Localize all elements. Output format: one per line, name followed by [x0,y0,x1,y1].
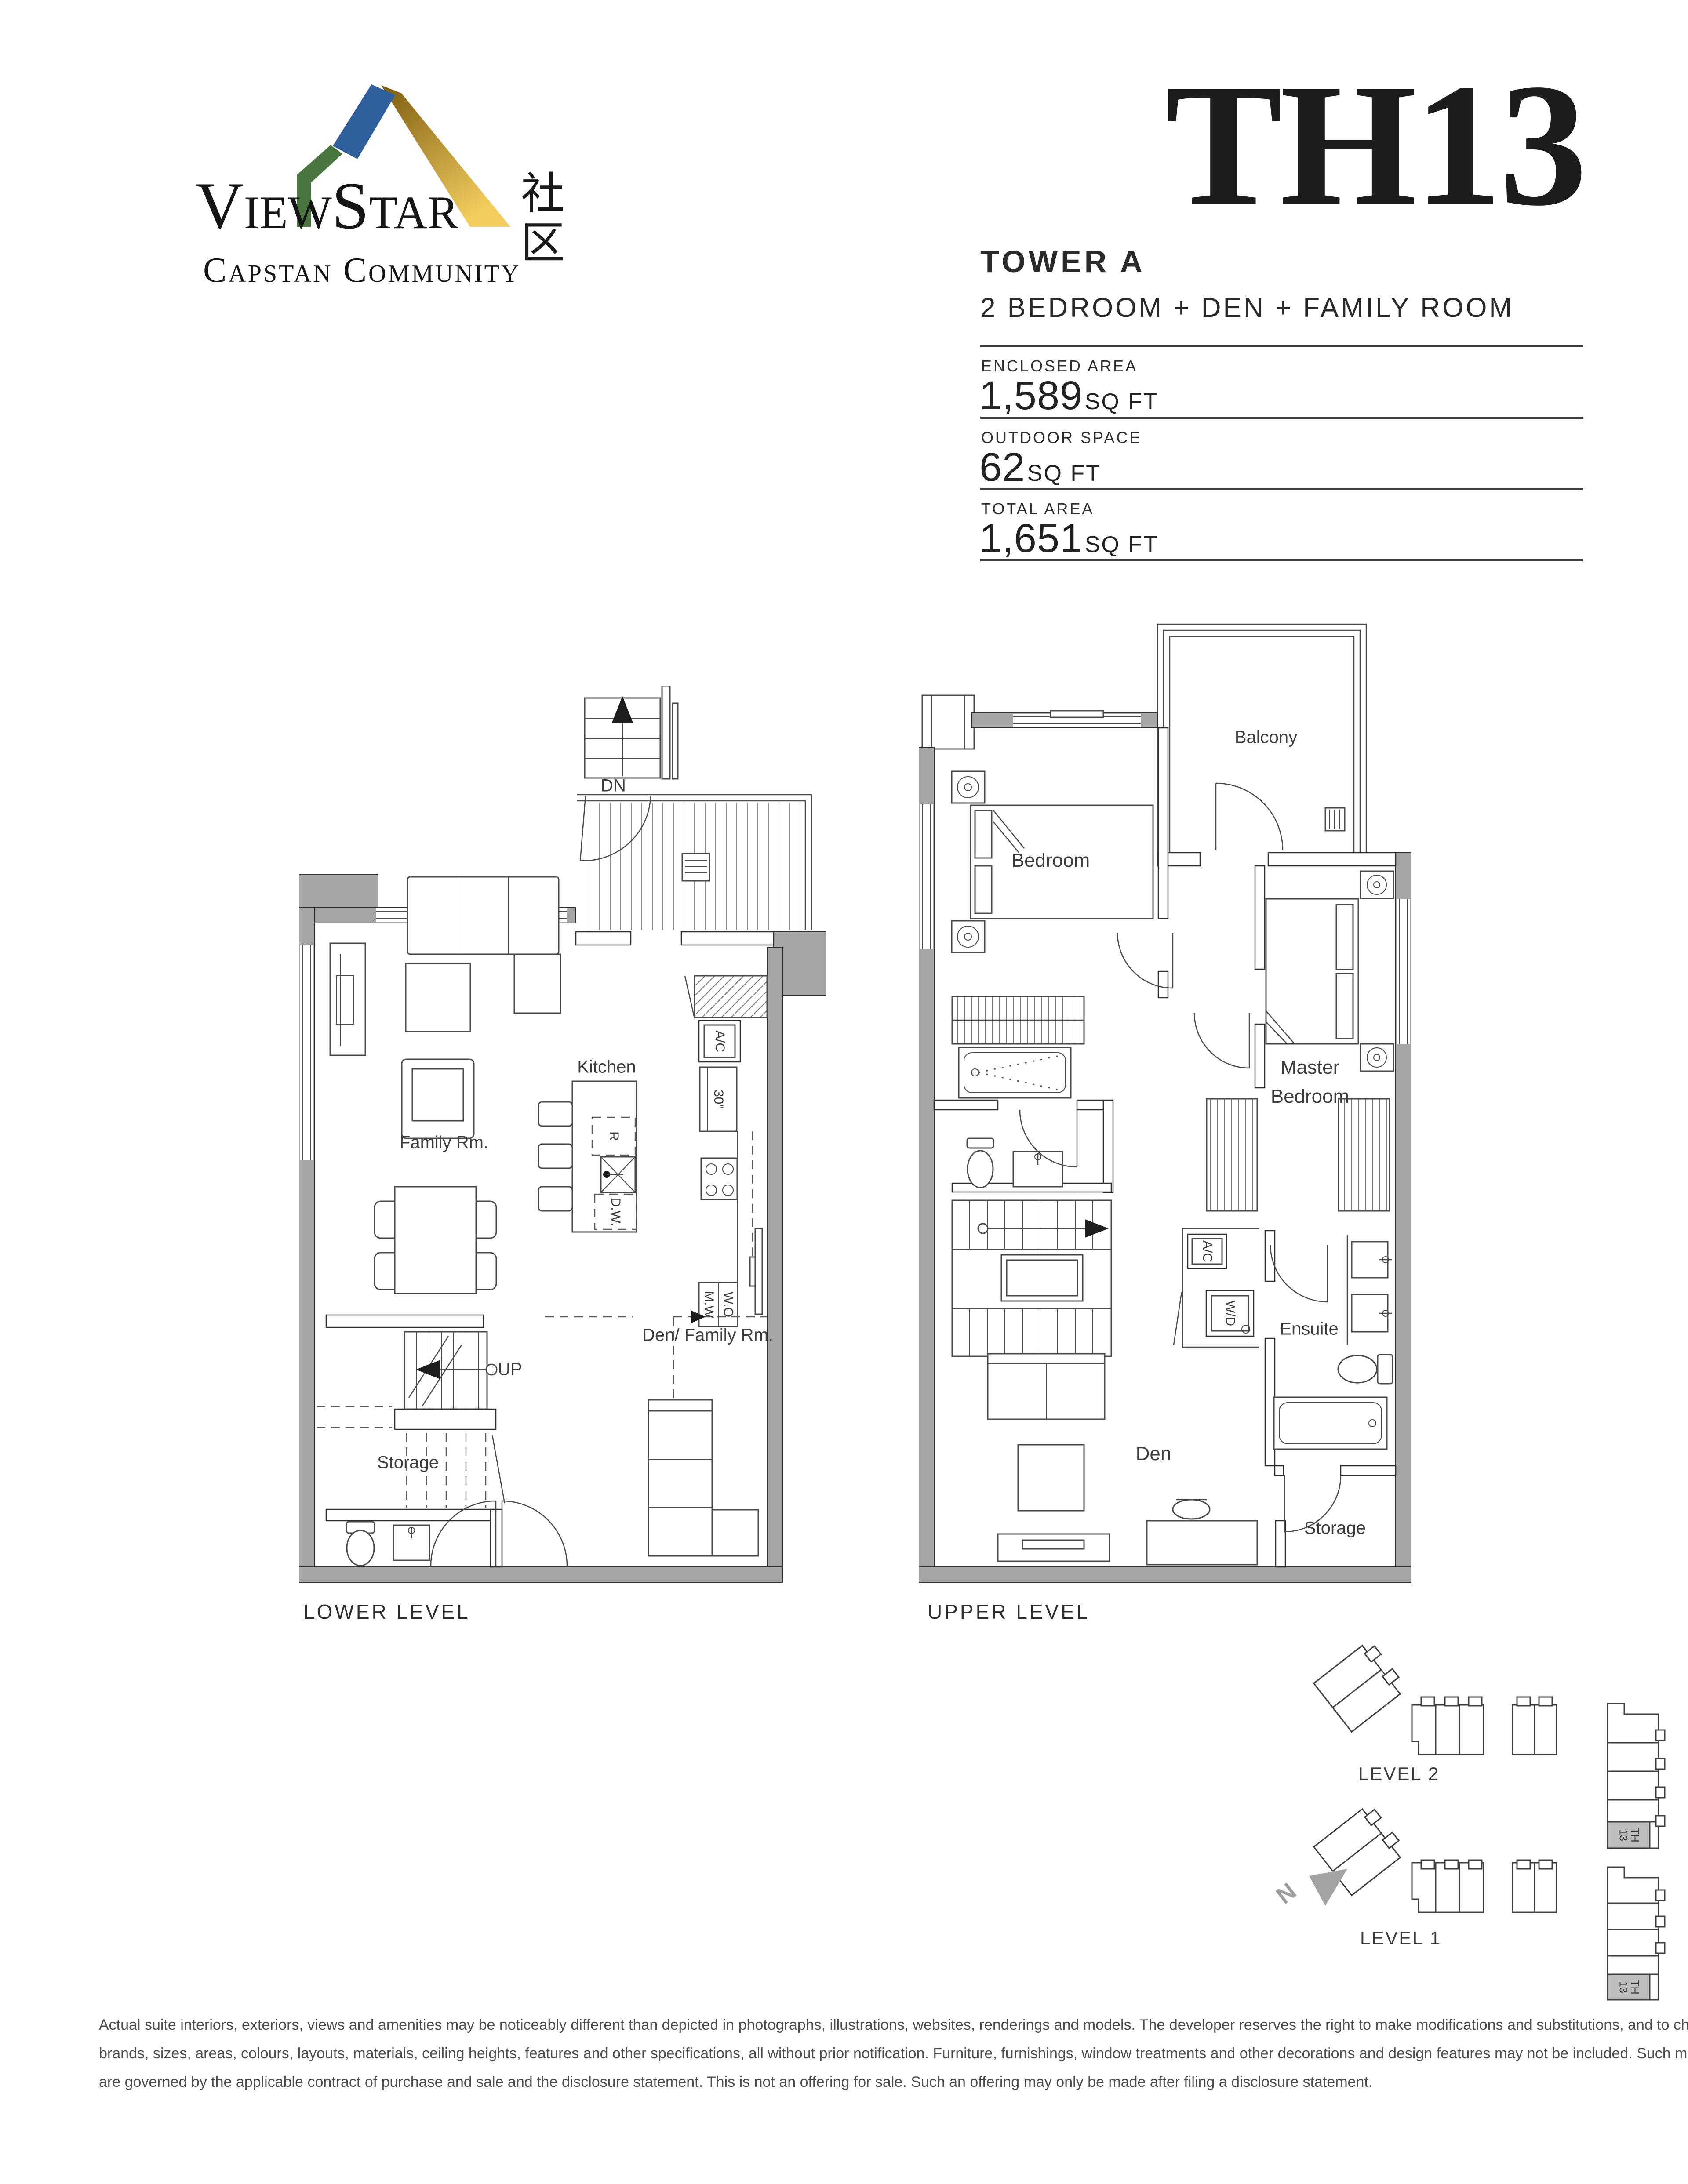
key-plan-drawing [1253,1644,1670,2022]
powder-toilet [346,1522,375,1566]
divider [980,345,1583,347]
level1-label: LEVEL 1 [1360,1928,1441,1949]
label-wall-oven: W.O [720,1292,735,1317]
den-media-console [750,1228,762,1314]
brand-cjk: 社区 [521,169,569,268]
disclaimer: Actual suite interiors, exteriors, views… [99,2011,1688,2097]
den-furniture [988,1354,1257,1565]
divider [980,559,1583,561]
unit-tag-level1: TH 13 [1617,1973,1641,2001]
tower-name: TOWER A [980,244,1146,279]
area-value-enclosed: 1,589 SQ FT [979,373,1159,419]
label-ensuite: Ensuite [1280,1319,1338,1339]
brand-name: ViewStar [196,172,458,239]
label-dishwasher: D.W. [608,1198,623,1226]
lower-level-title: LOWER LEVEL [303,1600,470,1624]
label-bedroom: Bedroom [1011,850,1090,872]
stairs-up [404,1332,497,1409]
label-range: R [606,1131,621,1141]
label-den: Den [1136,1443,1171,1465]
label-fridge: 30" [711,1090,726,1109]
powder-sink [393,1525,429,1560]
label-master-bedroom: Master Bedroom [1244,1053,1376,1111]
label-den-family: Den/ Family Rm. [642,1326,773,1345]
label-ac: A/C [712,1030,727,1052]
divider [980,417,1583,419]
console-table [330,943,365,1055]
unit-type: 2 BEDROOM + DEN + FAMILY ROOM [980,292,1514,323]
key-plans: LEVEL 2 LEVEL 1 TH 13 TH 13 N [1253,1644,1670,2022]
unit-tag-level2: TH 13 [1617,1821,1641,1849]
den-sofa [648,1400,758,1556]
upper-level-plan: Balcony Bedroom Master Bedroom A/C W/D E… [919,615,1411,1604]
disclaimer-line2: brands, sizes, areas, colours, layouts, … [99,2039,1688,2068]
disclaimer-line1: Actual suite interiors, exteriors, views… [99,2011,1688,2039]
disclaimer-line3: are governed by the applicable contract … [99,2068,1688,2097]
label-dn: DN [600,776,626,796]
main-bath [959,1047,1077,1188]
community-name: Capstan Community [203,251,520,291]
cooktop [701,1158,737,1199]
stair-landing [395,1409,496,1429]
area-value-outdoor: 62 SQ FT [979,444,1101,491]
area-value-total: 1,651 SQ FT [979,516,1159,562]
entry-deck [577,795,811,930]
label-balcony: Balcony [1235,728,1297,748]
interior-wall [326,1509,491,1521]
label-family-room: Family Rm. [400,1133,488,1153]
level2-label: LEVEL 2 [1358,1763,1440,1784]
label-up: UP [498,1360,522,1380]
stairs [952,1200,1111,1356]
dining-set [375,1187,496,1294]
lower-level-plan: DN Kitchen Family Rm. A/C 30" R D.W. M.W… [299,686,826,1626]
divider [980,488,1583,490]
coffee-table [406,963,470,1032]
lower-level-drawing [299,686,826,1626]
unit-code: TH13 [1165,57,1585,233]
label-washer-dryer: W/D [1222,1301,1237,1326]
label-ac: A/C [1200,1240,1215,1262]
interior-wall [326,1315,484,1327]
island-sink [601,1157,635,1192]
label-storage: Storage [1304,1519,1366,1538]
label-storage: Storage [377,1453,439,1473]
room-doors [1117,933,1249,1068]
upper-level-title: UPPER LEVEL [928,1600,1090,1624]
label-kitchen: Kitchen [577,1057,636,1077]
armchair [402,1059,474,1138]
ensuite-fixtures [1270,1235,1393,1449]
master-bedroom-furniture [1266,871,1393,1071]
label-microwave: M.W [701,1291,716,1318]
north-arrow-icon [1309,1869,1347,1906]
floorplan-brochure-page: { "header": { "logo": { "brand": "ViewSt… [0,0,1688,2184]
laundry-closet [1174,1228,1259,1347]
entry-stair [585,686,678,779]
